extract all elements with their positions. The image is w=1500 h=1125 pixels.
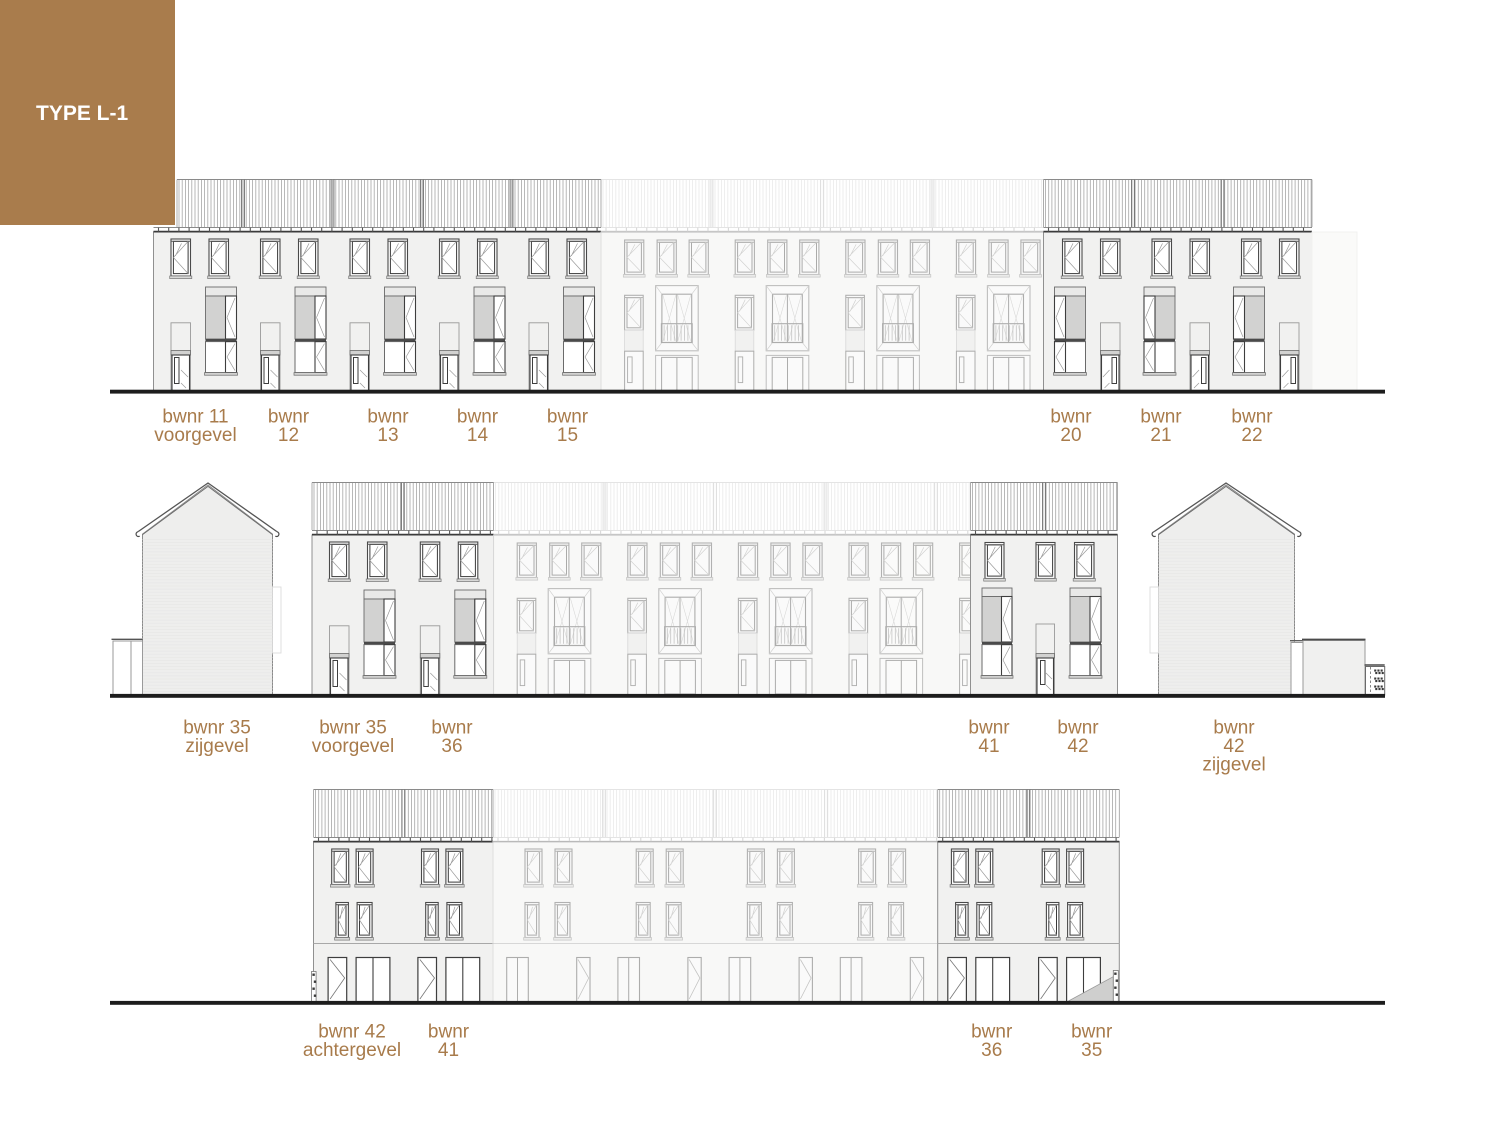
svg-text:42: 42 (1067, 736, 1088, 757)
svg-text:36: 36 (981, 1040, 1002, 1061)
svg-text:20: 20 (1060, 425, 1081, 446)
svg-text:TYPE L-1: TYPE L-1 (36, 102, 129, 125)
svg-text:zijgevel: zijgevel (185, 736, 248, 757)
svg-text:36: 36 (441, 736, 462, 757)
svg-text:15: 15 (557, 425, 578, 446)
svg-text:41: 41 (438, 1040, 459, 1061)
svg-text:21: 21 (1150, 425, 1171, 446)
svg-text:22: 22 (1241, 425, 1262, 446)
svg-text:41: 41 (978, 736, 999, 757)
svg-text:14: 14 (467, 425, 489, 446)
svg-text:12: 12 (278, 425, 299, 446)
svg-text:achtergevel: achtergevel (303, 1040, 401, 1061)
svg-text:zijgevel: zijgevel (1202, 755, 1265, 776)
svg-text:13: 13 (377, 425, 398, 446)
svg-text:voorgevel: voorgevel (312, 736, 394, 757)
svg-text:35: 35 (1081, 1040, 1102, 1061)
svg-text:voorgevel: voorgevel (154, 425, 236, 446)
